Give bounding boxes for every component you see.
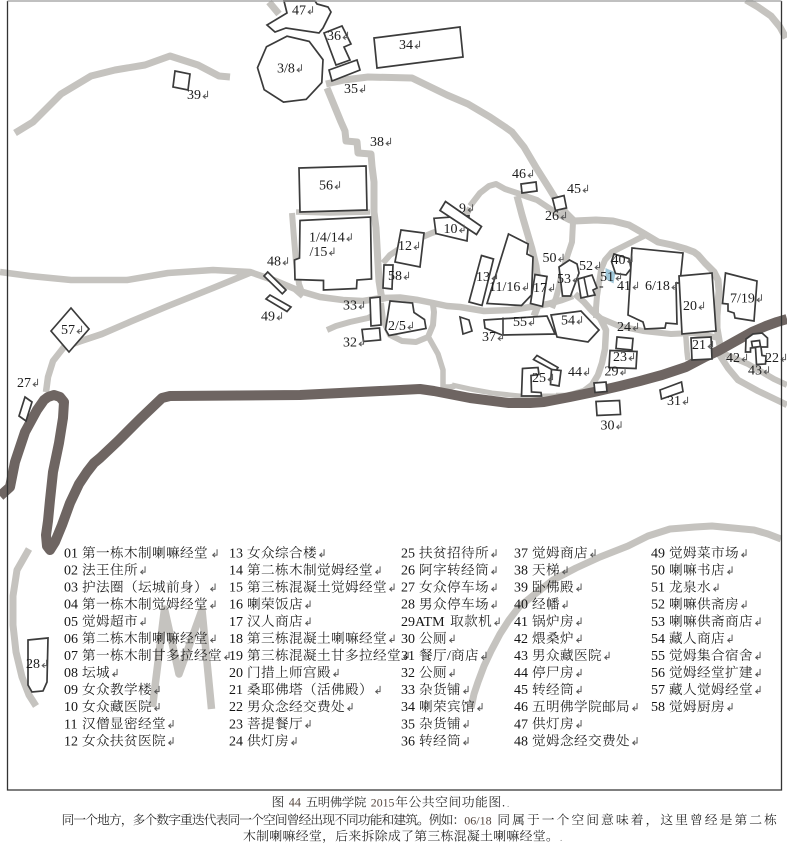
svg-text:36: 36 [327,29,341,44]
svg-text:39: 39 [187,88,201,103]
svg-text:45: 45 [514,683,528,698]
svg-text:29: 29 [605,365,619,380]
svg-text:41: 41 [514,615,528,630]
svg-text:58: 58 [388,269,402,284]
svg-text:21: 21 [229,683,243,698]
svg-text:39: 39 [514,581,528,596]
svg-text:24: 24 [229,734,243,749]
svg-text:57: 57 [61,323,75,338]
svg-text:47: 47 [514,717,528,732]
svg-text:56: 56 [319,179,333,194]
svg-text:28: 28 [26,657,40,672]
svg-text:55: 55 [651,649,665,664]
svg-text:44: 44 [568,365,582,380]
svg-text:9: 9 [459,202,466,217]
svg-text:11/16: 11/16 [489,280,520,295]
svg-text:09: 09 [64,683,78,698]
svg-text:51: 51 [651,581,665,596]
svg-text:55: 55 [513,315,527,330]
svg-text:07: 07 [64,649,78,664]
svg-text:2015: 2015 [371,796,395,810]
svg-text:10: 10 [444,222,458,237]
svg-text:.: . [507,799,509,809]
svg-text:50: 50 [651,564,665,579]
svg-text:41: 41 [617,279,631,294]
svg-text:22: 22 [229,700,243,715]
svg-text:29ATM: 29ATM [401,615,445,630]
svg-text:13: 13 [476,270,490,285]
svg-text:43: 43 [748,364,762,379]
svg-text:38: 38 [514,564,528,579]
svg-text:49: 49 [651,547,665,562]
svg-text:54: 54 [561,314,575,329]
svg-text:53: 53 [651,615,665,630]
svg-text:06/18: 06/18 [464,813,491,827]
svg-text:18: 18 [229,632,243,647]
svg-text:-: - [599,279,604,294]
svg-text:37: 37 [482,330,496,345]
svg-text:31: 31 [667,394,681,409]
svg-text:43: 43 [514,649,528,664]
svg-text:14: 14 [229,564,243,579]
svg-text:3/8: 3/8 [277,62,295,77]
svg-text:46: 46 [514,700,528,715]
svg-text:52: 52 [579,259,593,274]
svg-text:57: 57 [651,683,665,698]
svg-text:20: 20 [683,299,697,314]
svg-text:25: 25 [401,547,415,562]
svg-text:12: 12 [64,734,78,749]
svg-text:30: 30 [401,632,415,647]
svg-text:.: . [502,796,505,810]
svg-text:12: 12 [398,239,412,254]
svg-text:1/4/14: 1/4/14 [309,231,345,246]
svg-text:46: 46 [512,167,526,182]
svg-text:33: 33 [401,683,415,698]
svg-text:25: 25 [532,371,546,386]
svg-text:52: 52 [651,598,665,613]
svg-text:48: 48 [267,255,281,270]
svg-text:26: 26 [401,564,415,579]
svg-text:32: 32 [401,666,415,681]
svg-text:36: 36 [401,734,415,749]
svg-text:27: 27 [17,376,31,391]
svg-text:44: 44 [514,666,528,681]
svg-text:.: . [560,833,562,843]
svg-text:45: 45 [567,182,581,197]
svg-text:02: 02 [64,564,78,579]
svg-text:27: 27 [401,581,415,596]
svg-text:7/19: 7/19 [730,292,755,307]
svg-text:33: 33 [343,299,357,314]
svg-text:42: 42 [726,351,740,366]
svg-text:/15: /15 [310,245,328,260]
svg-text:40: 40 [514,598,528,613]
svg-text:34: 34 [401,700,415,715]
svg-text:28: 28 [401,598,415,613]
svg-text:19: 19 [229,649,243,664]
svg-text:23: 23 [229,717,243,732]
svg-text:38: 38 [370,135,384,150]
svg-text:40: 40 [612,253,626,268]
svg-text:08: 08 [64,666,78,681]
svg-text:11: 11 [64,717,77,732]
svg-text:13: 13 [229,547,243,562]
svg-text:15: 15 [229,581,243,596]
svg-text:17: 17 [533,281,547,296]
svg-text:20: 20 [229,666,243,681]
svg-text:05: 05 [64,615,78,630]
svg-text:26: 26 [545,209,559,224]
svg-text:50: 50 [543,251,557,266]
svg-text:30: 30 [601,419,615,434]
svg-text:23: 23 [613,350,627,365]
svg-text:2/5: 2/5 [388,319,406,334]
svg-text:48: 48 [514,734,528,749]
svg-text:24: 24 [617,320,631,335]
svg-text:04: 04 [64,598,78,613]
svg-text:37: 37 [514,547,528,562]
svg-text:16: 16 [229,598,243,613]
svg-text:35: 35 [344,82,358,97]
svg-text:54: 54 [651,632,665,647]
svg-text:10: 10 [64,700,78,715]
svg-text:56: 56 [651,666,665,681]
svg-text:49: 49 [261,310,275,325]
svg-text:32: 32 [343,336,357,351]
svg-text:35: 35 [401,717,415,732]
svg-text:44: 44 [289,796,301,810]
svg-text:22: 22 [765,351,779,366]
svg-text:47: 47 [292,4,306,19]
svg-text:42: 42 [514,632,528,647]
svg-text:34: 34 [399,38,413,53]
svg-text:21: 21 [692,338,706,353]
svg-text:53: 53 [557,272,571,287]
svg-text:17: 17 [229,615,243,630]
svg-text:06: 06 [64,632,78,647]
svg-text:03: 03 [64,581,78,596]
svg-text:58: 58 [651,700,665,715]
svg-text:31: 31 [401,649,415,664]
svg-text:6/18: 6/18 [645,279,670,294]
svg-text:01: 01 [64,547,78,562]
svg-text:/: / [447,649,451,664]
